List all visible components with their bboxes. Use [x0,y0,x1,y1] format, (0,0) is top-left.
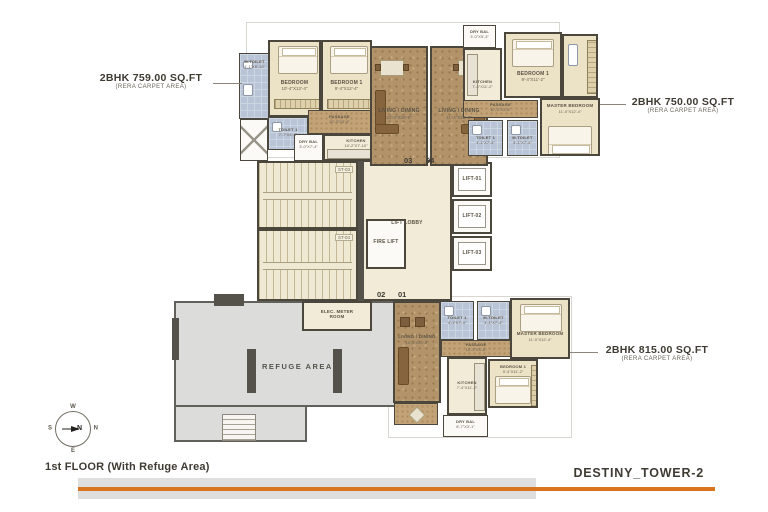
wc-icon [511,125,521,135]
bed-icon [548,126,592,156]
bed-icon [512,39,554,67]
room-lift-01: LIFT-01 [452,162,492,197]
leader-line-759 [213,83,242,84]
bed-icon [495,376,531,404]
floor-title: 1st FLOOR (With Refuge Area) [45,461,210,473]
footer-orange-bar [78,487,715,491]
room-label: M.TOILET [508,135,537,140]
room-bedroom-u03: BEDROOM10'-4"X12'-4" [268,40,321,117]
room-passage-u03: PASSAGE10'-3"X3'-6" [308,110,371,134]
lift-03-label: LIFT-03 [454,250,490,256]
bed-icon [278,46,318,74]
room-dims: 10'-4"X20'-0" [395,340,439,345]
armchair-icon [400,317,410,327]
room-living-u01: LIVING / DINING10'-4"X20'-0" [393,301,441,403]
room-dims: 11'-4"X20'-0" [432,115,486,121]
dresser-icon [568,44,578,66]
room-bedroom1-u01: BEDROOM 19'-4"X11'-2" [488,359,538,408]
room-elec-meter: ELEC. METER ROOM [302,301,372,331]
unit-759-sub: (RERA CARPET AREA) [90,84,212,90]
wardrobe-icon [274,99,321,109]
room-kitchen-u04: KITCHEN7'-4"X11'-2" [463,48,502,102]
chair-icon [375,64,381,71]
sofa-icon [398,347,409,385]
bed-icon [330,46,368,74]
room-dims: 4'-1"X7'-4" [508,140,537,145]
room-dims: 7'-4"X11'-2" [449,385,485,390]
room-dressing-u04 [562,34,598,98]
room-dims: 10'-3"X3'-6" [309,119,370,124]
kitchen-counter-icon [327,149,373,159]
room-balcony-u01 [394,403,438,425]
elec-meter-label: ELEC. METER ROOM [317,309,357,320]
leader-line-750 [600,104,626,105]
balcony-table-icon [409,407,426,424]
room-toilet1-u01: TOILET 14'-1"X7'-4" [440,301,474,340]
unit-815-area: 2BHK 815.00 SQ.FT [600,344,714,356]
room-dims: 4'-1"X8'-10" [240,64,269,69]
compass-needle-n: N [77,425,82,432]
room-dims: 11'-0"X12'-4" [512,337,568,342]
unit-750-label: 2BHK 750.00 SQ.FT (RERA CARPET AREA) [626,96,740,114]
refuge-area-label: REFUGE AREA [262,362,333,371]
lift-01-label: LIFT-01 [454,176,490,182]
room-lift-02: LIFT-02 [452,199,492,234]
room-dims: 7'-4"X11'-2" [465,84,500,89]
room-mtoilet-u04: M.TOILET4'-1"X7'-4" [507,120,538,156]
room-dims: 9'-4"X11'-2" [506,77,560,83]
compass-west: W [70,404,76,410]
lift-lobby-label: LIFT LOBBY [364,220,450,226]
room-master-bedroom-u04: MASTER BEDROOM11'-0"X12'-4" [540,98,600,156]
wc-icon [243,84,253,96]
room-mtoilet-u03: M.TOILET4'-1"X8'-10" [239,53,270,119]
wall-segment [333,349,342,393]
chair-icon [453,64,459,71]
compass-north: N [94,425,98,431]
staircase-st04-label: ST-04 [335,234,353,241]
room-staircase-st03: ST-03 [257,161,358,229]
wall-segment [172,318,179,360]
room-drybal-u03: DRY BAL3'-0"X7'-4" [294,134,323,161]
room-living-u03: LIVING / DINING10'-4"X20'-0" [370,46,428,166]
flat-number-01: 01 [398,290,406,299]
room-dims: 4'-1"X7'-4" [441,320,473,325]
fire-lift-label: FIRE LIFT [368,239,404,245]
room-dims: 10'-4"X12'-4" [270,86,319,92]
unit-759-label: 2BHK 759.00 SQ.FT (RERA CARPET AREA) [90,72,212,90]
room-dims: 9'-4"X12'-4" [323,86,370,92]
wall-segment [358,161,364,301]
room-dims: 7'-7"X4'-4" [269,132,307,137]
unit-750-sub: (RERA CARPET AREA) [626,108,740,114]
room-lift-03: LIFT-03 [452,236,492,271]
room-drybal-u01: DRY BAL8'-7"X3'-1" [443,415,488,437]
compass-east: E [71,448,75,454]
compass-needle-tail [62,429,71,430]
wardrobe-icon [587,40,597,94]
room-foyer-u03 [240,119,268,161]
room-toilet1-u04: TOILET 14'-1"X7'-4" [468,120,503,156]
room-dims: 3'-0"X7'-4" [295,144,322,149]
room-mtoilet-u01: M.TOILET4'-1"X7'-4" [477,301,510,340]
armchair-icon [415,317,425,327]
flat-number-04: 04 [426,156,434,165]
wardrobe-icon [327,99,372,109]
unit-759-area: 2BHK 759.00 SQ.FT [90,72,212,84]
room-dims: 10'-2"X7'-10" [325,143,387,148]
room-drybal-u04: DRY BAL3'-0"X5'-3" [463,25,496,48]
bed-icon [520,304,562,332]
flat-number-03: 03 [404,156,412,165]
compass-south: S [48,425,52,431]
room-dims: 3'-0"X5'-3" [464,34,495,39]
lift-02-label: LIFT-02 [454,213,490,219]
sofa-icon [375,124,399,134]
room-master-bedroom-u01: MASTER BEDROOM11'-0"X12'-4" [510,298,570,359]
wall-segment [214,294,244,306]
room-dims: 10'-3"X3'-6" [442,347,510,352]
room-dims: 10'-3"X3'-6" [464,107,537,112]
refuge-ladder-icon [222,414,256,441]
flat-number-02: 02 [377,290,385,299]
room-label: LIVING / DINING [372,108,426,114]
room-dims: 4'-1"X7'-4" [478,320,509,325]
compass: W N E S N [48,404,98,454]
wc-icon [472,125,482,135]
staircase-st03-label: ST-03 [335,166,353,173]
unit-815-label: 2BHK 815.00 SQ.FT (RERA CARPET AREA) [600,344,714,362]
unit-750-area: 2BHK 750.00 SQ.FT [626,96,740,108]
leader-line-815 [570,352,598,353]
room-dims: 4'-1"X7'-4" [469,140,502,145]
tower-title: DESTINY_TOWER-2 [552,466,704,480]
room-staircase-st04: ST-04 [257,229,358,301]
room-bedroom1-u04: BEDROOM 19'-4"X11'-2" [504,32,562,98]
wall-segment [247,349,256,393]
floor-plan-page: REFUGE AREA LIFT LOBBY ST-03 ST-04 FIRE … [0,0,768,512]
chair-icon [403,64,409,71]
room-kitchen-u01: KITCHEN7'-4"X11'-2" [447,357,487,415]
room-dims: 10'-4"X20'-0" [372,115,426,121]
kitchen-counter-icon [467,54,478,96]
room-dims: 9'-4"X11'-2" [490,369,536,374]
unit-815-sub: (RERA CARPET AREA) [600,356,714,362]
room-fire-lift: FIRE LIFT [366,219,406,269]
room-dims: 8'-7"X3'-1" [444,424,487,429]
dining-table-icon [380,60,404,76]
room-bedroom1-u03: BEDROOM 19'-4"X12'-4" [321,40,372,117]
room-passage-u01: PASSAGE10'-3"X3'-6" [441,340,511,357]
room-dims: 11'-0"X12'-4" [542,109,598,114]
